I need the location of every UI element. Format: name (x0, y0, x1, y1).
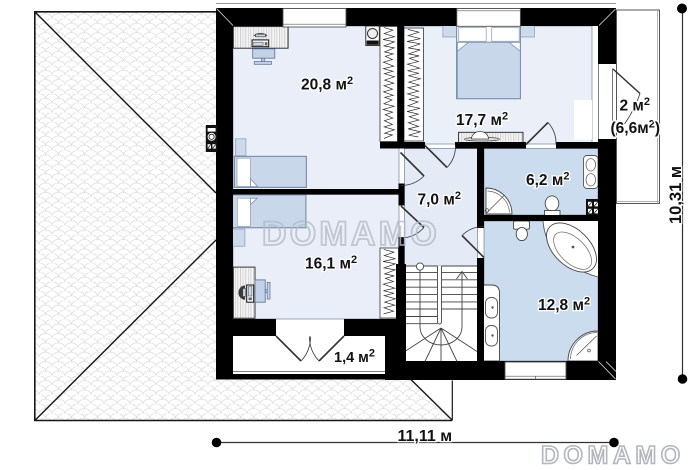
svg-text:7,0 м2: 7,0 м2 (418, 190, 461, 209)
svg-text:10,31 м: 10,31 м (667, 166, 685, 224)
svg-text:11,11 м: 11,11 м (398, 428, 453, 445)
svg-text:6,2 м2: 6,2 м2 (526, 171, 569, 190)
svg-text:16,1 м2: 16,1 м2 (305, 254, 357, 273)
svg-text:12,8 м2: 12,8 м2 (538, 296, 590, 315)
svg-text:20,8 м2: 20,8 м2 (301, 75, 353, 94)
svg-text:17,7 м2: 17,7 м2 (456, 111, 508, 130)
svg-text:DOMAMO: DOMAMO (262, 215, 440, 253)
svg-text:1,4 м2: 1,4 м2 (334, 348, 375, 367)
